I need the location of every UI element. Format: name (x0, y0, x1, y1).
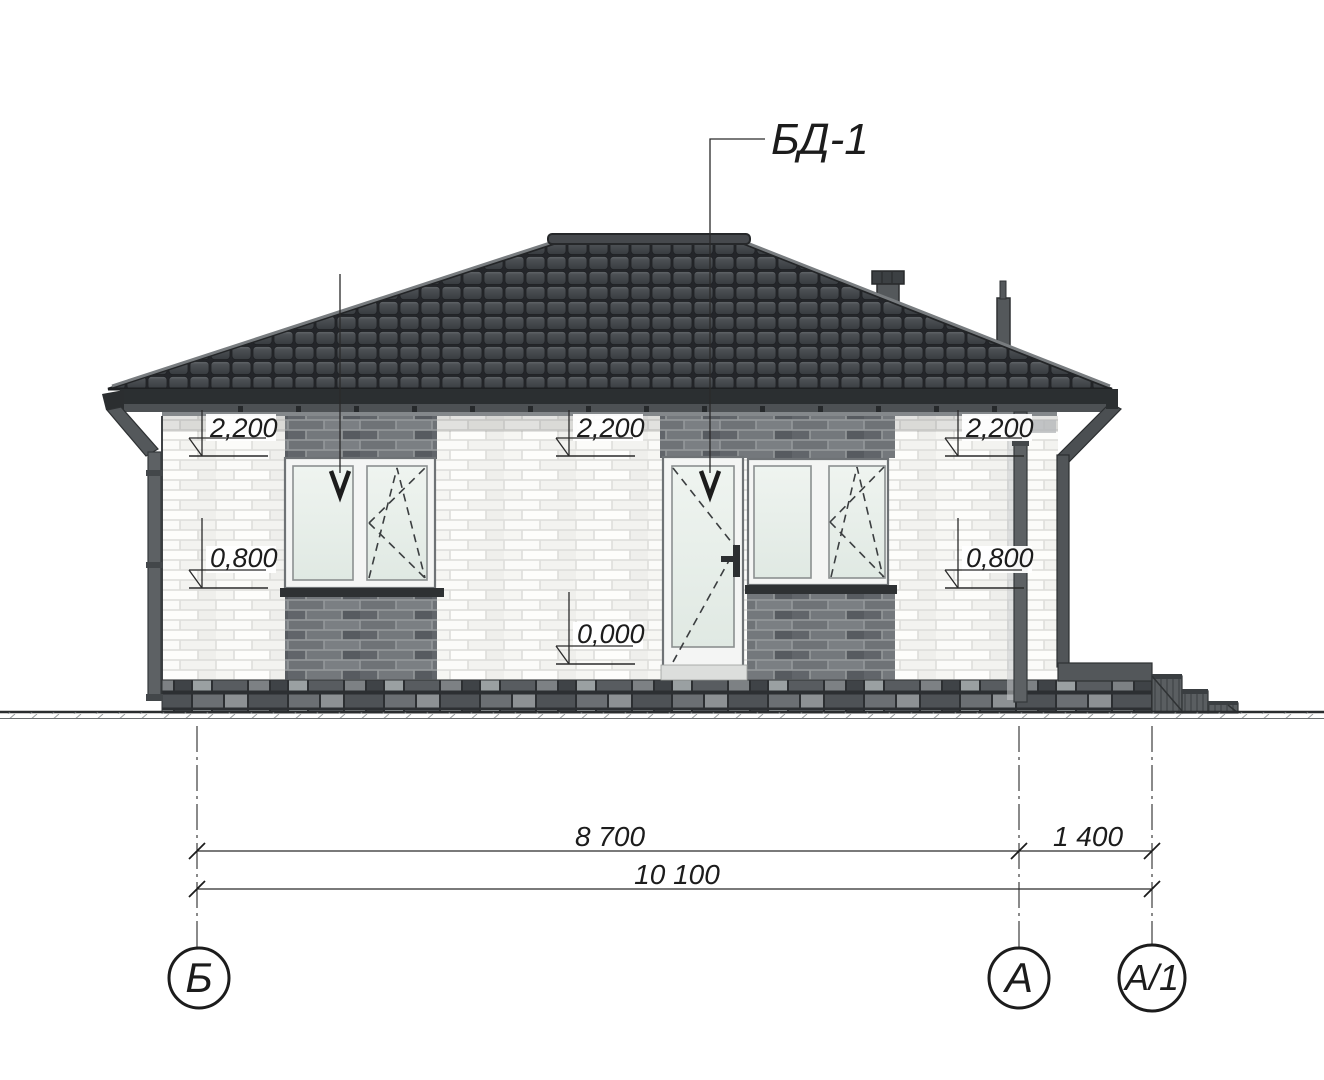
axis-extension-lines (197, 726, 1152, 947)
center-window-fixed-pane (754, 466, 811, 578)
elevation-drawing-canvas: БД-1 2,200 0,800 2,200 0,000 (0, 0, 1324, 1080)
door-handle (733, 545, 740, 577)
axis-letter: А/1 (1123, 957, 1179, 998)
dimension-wall-span: 8 700 (575, 821, 645, 852)
fascia-board (120, 389, 1117, 404)
gutter-front (120, 404, 1117, 412)
fascia-gutter (102, 389, 1117, 416)
eave-return (1106, 389, 1118, 409)
axis-bubble-a1: А/1 (1119, 945, 1185, 1011)
dark-brick-center-spandrel (747, 591, 895, 682)
axis-bubble-b: Б (169, 948, 229, 1008)
ground-line (0, 712, 1324, 719)
elevation-value: 2,200 (209, 413, 278, 443)
center-window-opening-pane (829, 466, 885, 578)
elevation-value: 0,800 (966, 543, 1034, 573)
entrance-door (661, 457, 747, 680)
dark-brick-center-lintel (660, 416, 895, 458)
step-2 (1182, 691, 1208, 713)
stone-plinth (162, 680, 1152, 713)
door-label: БД-1 (771, 115, 869, 164)
facade-elevation-svg: БД-1 2,200 0,800 2,200 0,000 (0, 0, 1324, 1080)
porch-slab (1058, 663, 1152, 681)
left-window (280, 458, 444, 597)
door-handle-lever (721, 556, 733, 562)
porch-corner-column (1057, 455, 1069, 667)
axis-letter: Б (185, 954, 212, 1001)
axis-bubble-a: А (989, 948, 1049, 1008)
porch (1057, 389, 1238, 713)
downspout-elbow (107, 407, 158, 456)
axis-letter: А (1002, 954, 1033, 1001)
dark-brick-left-spandrel (285, 596, 437, 682)
center-window (745, 459, 897, 594)
porch-steps (1152, 674, 1238, 713)
ridge-cap (548, 234, 750, 244)
roof-tiles (108, 243, 1112, 389)
left-downspout (107, 407, 163, 701)
left-window-opening-pane (367, 466, 427, 580)
center-window-sill (745, 585, 897, 594)
dimension-porch-span: 1 400 (1053, 821, 1123, 852)
elevation-value: 2,200 (576, 413, 645, 443)
elevation-value: 2,200 (965, 413, 1034, 443)
door-threshold (661, 665, 747, 680)
dark-brick-left-lintel (285, 416, 437, 459)
elevation-value: 0,800 (210, 543, 278, 573)
dimension-lines: 8 700 1 400 10 100 (189, 821, 1160, 897)
dimension-total-span: 10 100 (634, 859, 720, 890)
left-window-sill (280, 588, 444, 597)
elevation-value: 0,000 (577, 619, 645, 649)
hip-roof (108, 234, 1112, 389)
